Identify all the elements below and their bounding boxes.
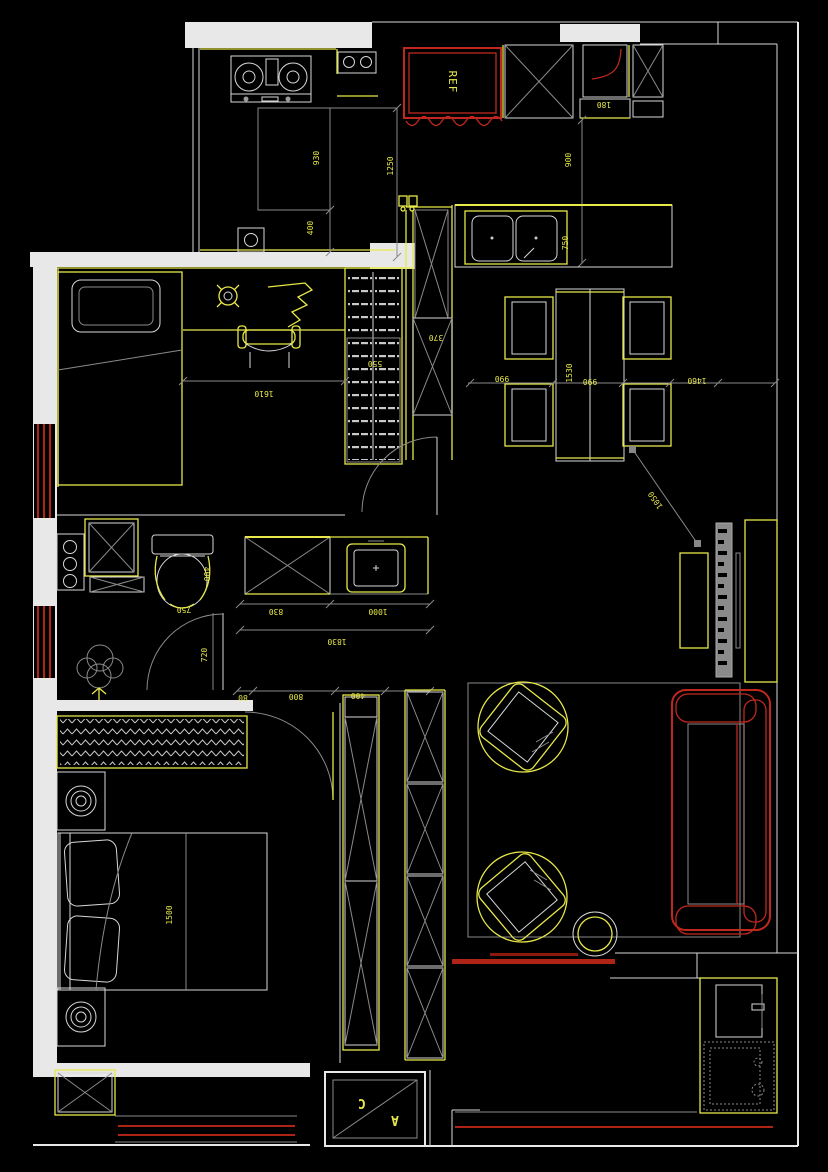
dim-toilet-750: 750 xyxy=(164,604,204,614)
shower-box xyxy=(85,519,144,592)
lounge-chair-bottom xyxy=(476,851,569,944)
bedroom2-desk-chair xyxy=(183,326,345,368)
diagonal-dim-line xyxy=(629,446,701,547)
sofa xyxy=(672,690,770,934)
section-marker-letter-c: C xyxy=(352,1094,372,1110)
laundry-unit xyxy=(700,978,777,1113)
dim-dining-990-mid: 990 xyxy=(570,376,610,386)
side-table xyxy=(573,912,617,956)
nightstand-bottom xyxy=(57,988,105,1046)
dim-bed1-800: 800 xyxy=(276,691,316,701)
dim-toilet-400: 400 xyxy=(201,554,211,594)
exterior-walls xyxy=(30,22,798,1146)
kitchen-dimension-lines xyxy=(258,104,401,261)
dim-kitchen-930: 930 xyxy=(312,138,322,178)
living-rug xyxy=(468,683,740,937)
kitchen-floor-drain xyxy=(238,228,264,252)
bathroom-door xyxy=(147,613,223,690)
dim-column-180: 180 xyxy=(584,99,624,109)
water-heater-unit xyxy=(57,534,84,590)
bedroom1-dresser xyxy=(57,716,247,768)
dim-wardrobe-550: 550 xyxy=(355,358,395,368)
dim-cabinet-370: 370 xyxy=(416,332,456,342)
section-marker-letter-a: A xyxy=(385,1111,405,1127)
plant xyxy=(77,645,123,700)
vanity-cabinet xyxy=(245,537,330,594)
dim-table-1530: 1530 xyxy=(565,353,575,393)
dim-bed-1500: 1500 xyxy=(165,895,175,935)
bedroom1-bed xyxy=(58,833,267,990)
dim-bathdoor-720: 720 xyxy=(200,635,210,675)
dim-right-900: 900 xyxy=(564,140,574,180)
living-threshold xyxy=(452,953,615,964)
lounge-chair-top xyxy=(477,681,570,774)
wall-lamp-squiggle xyxy=(268,283,312,327)
dim-dining-990-left: 990 xyxy=(482,373,522,383)
dim-bed2-1610: 1610 xyxy=(244,388,284,398)
nightstand-top xyxy=(57,772,105,830)
right-dim-line-900 xyxy=(578,116,586,267)
bedroom1-wardrobe xyxy=(343,695,379,1050)
dim-dining-1460: 1460 xyxy=(677,375,717,385)
bedroom1-door xyxy=(245,712,333,800)
section-marker-box xyxy=(325,1072,425,1146)
ceiling-lamp-symbol xyxy=(217,285,239,307)
dim-bed1-80: 80 xyxy=(223,692,263,702)
kitchen-hob-sink xyxy=(337,49,378,96)
bedroom2-dim-line xyxy=(179,377,349,385)
floor-plan-canvas: REF 930 1250 400 180 900 750 990 1530 99… xyxy=(0,0,828,1172)
refrigerator-label: REF xyxy=(445,60,459,104)
storage-strip xyxy=(405,690,445,1060)
top-columns xyxy=(503,45,663,118)
dim-kitchen-400: 400 xyxy=(306,208,316,248)
dim-bed1-400: 400 xyxy=(338,690,378,700)
dim-bathwall-1830: 1830 xyxy=(317,636,357,646)
bedroom2-bed xyxy=(58,272,182,485)
gas-meter xyxy=(399,196,417,211)
dim-vanity-830: 830 xyxy=(256,606,296,616)
bottom-windows xyxy=(115,1112,773,1142)
kitchen-stove xyxy=(231,56,311,102)
plan-geometry xyxy=(0,0,828,1172)
dining-chairs xyxy=(505,297,671,446)
dim-basin-1000: 1000 xyxy=(358,606,398,616)
dim-kitchen-1250: 1250 xyxy=(386,146,396,186)
wash-basin xyxy=(330,537,428,594)
dim-counter-750: 750 xyxy=(561,223,571,263)
